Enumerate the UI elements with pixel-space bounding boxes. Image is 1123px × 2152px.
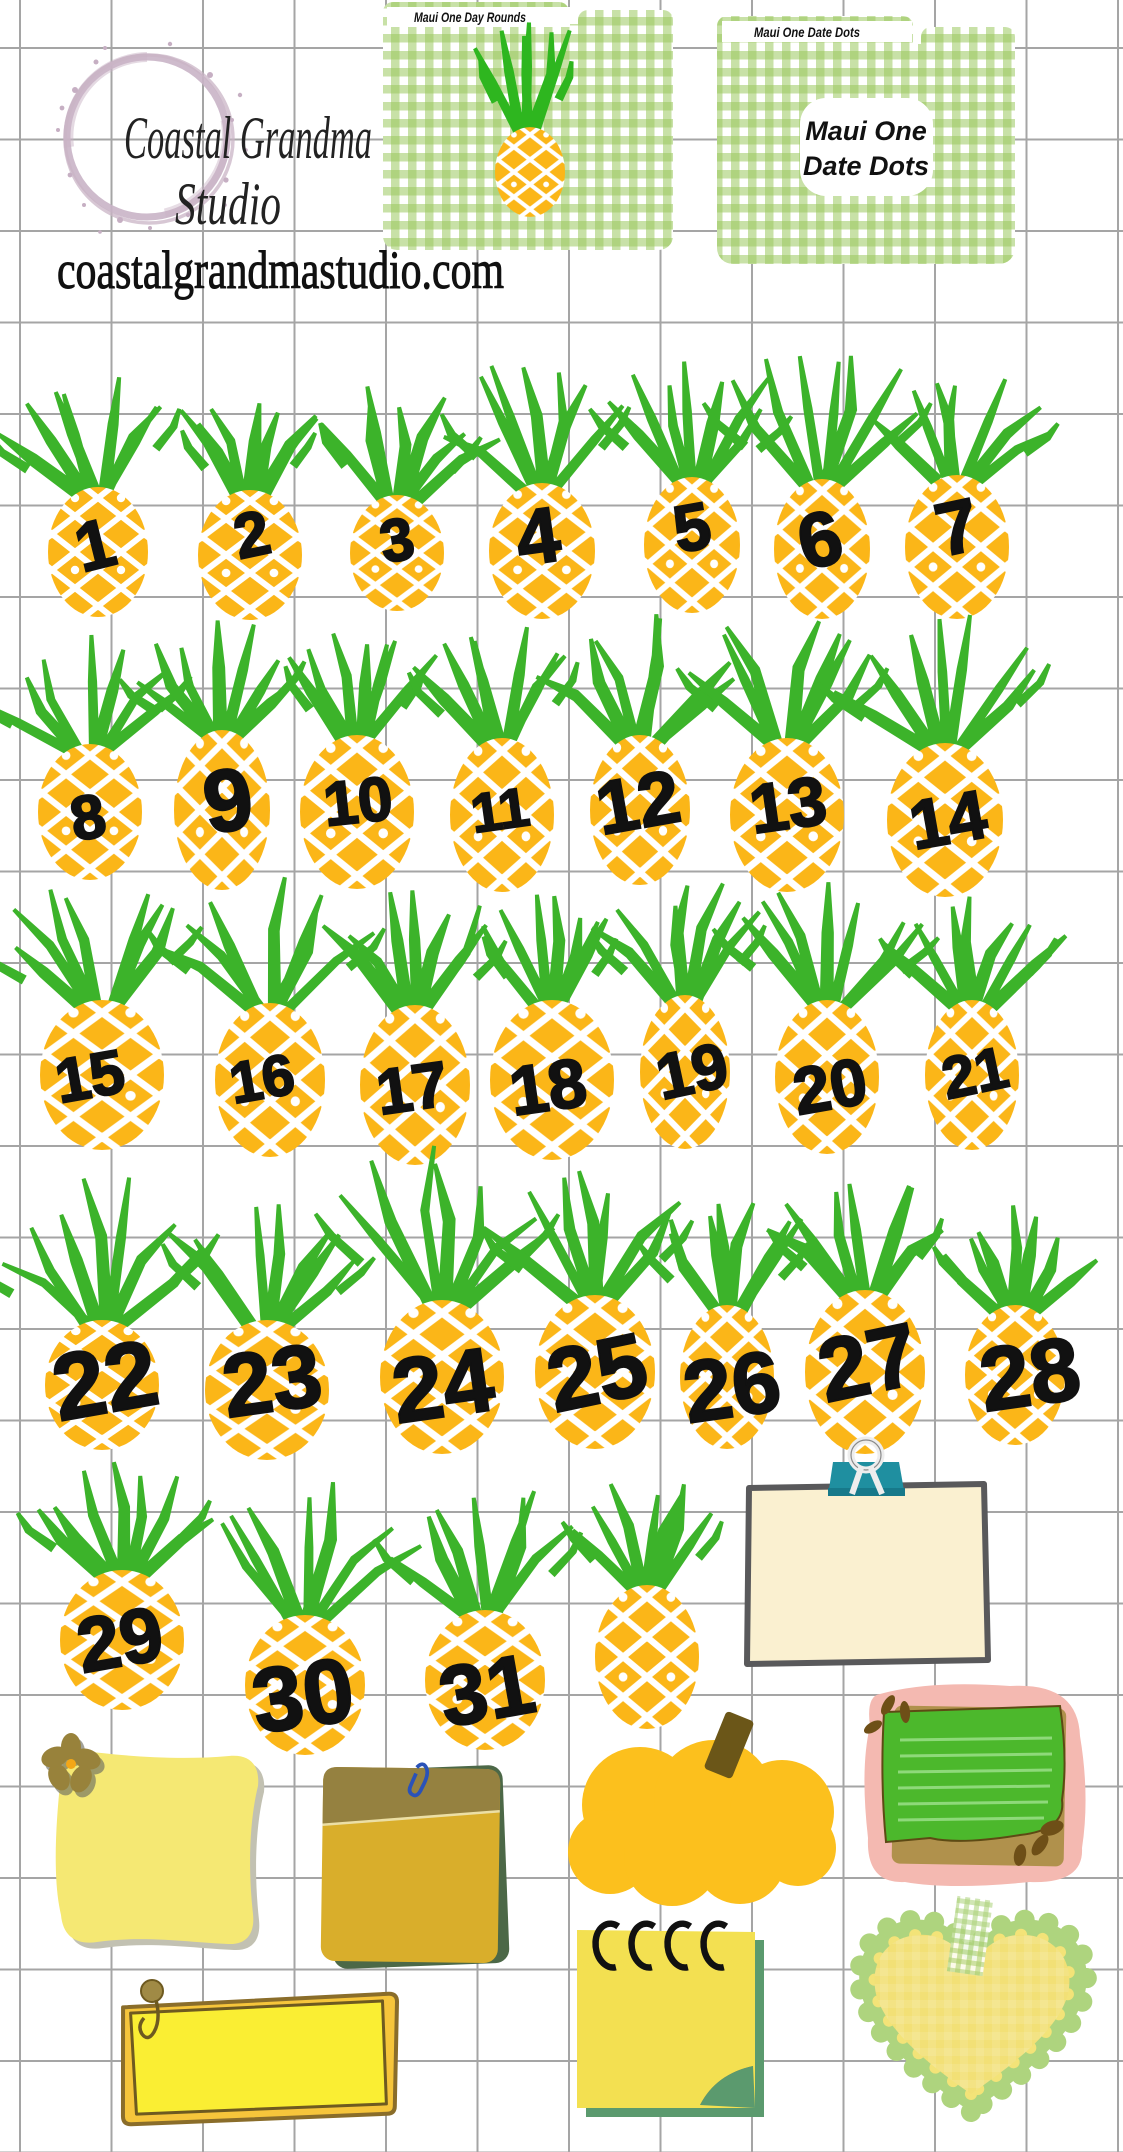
svg-text:22: 22 — [44, 1319, 165, 1441]
svg-text:13: 13 — [745, 762, 832, 849]
svg-text:11: 11 — [467, 775, 533, 844]
svg-text:10: 10 — [320, 764, 396, 840]
svg-text:Coastal Grandma: Coastal Grandma — [124, 105, 372, 171]
svg-text:18: 18 — [505, 1044, 592, 1131]
svg-text:20: 20 — [787, 1043, 872, 1129]
svg-text:19: 19 — [650, 1028, 735, 1113]
svg-text:Date Dots: Date Dots — [803, 151, 929, 181]
svg-text:Maui One Day Rounds: Maui One Day Rounds — [414, 9, 526, 25]
svg-text:31: 31 — [432, 1636, 542, 1746]
svg-text:24: 24 — [386, 1329, 501, 1443]
svg-text:Studio: Studio — [175, 171, 281, 237]
svg-text:26: 26 — [677, 1332, 786, 1442]
svg-text:29: 29 — [70, 1590, 169, 1690]
svg-text:17: 17 — [372, 1047, 453, 1128]
svg-text:23: 23 — [216, 1324, 328, 1437]
svg-text:30: 30 — [246, 1639, 360, 1753]
svg-text:16: 16 — [225, 1041, 300, 1116]
svg-text:Maui One Date Dots: Maui One Date Dots — [754, 24, 860, 40]
svg-text:21: 21 — [936, 1034, 1014, 1112]
svg-text:28: 28 — [973, 1319, 1086, 1432]
svg-text:14: 14 — [904, 775, 993, 864]
svg-text:12: 12 — [590, 753, 687, 850]
svg-text:15: 15 — [50, 1037, 130, 1117]
svg-text:25: 25 — [538, 1313, 656, 1431]
svg-text:27: 27 — [809, 1303, 927, 1421]
svg-text:Maui One: Maui One — [805, 116, 927, 146]
